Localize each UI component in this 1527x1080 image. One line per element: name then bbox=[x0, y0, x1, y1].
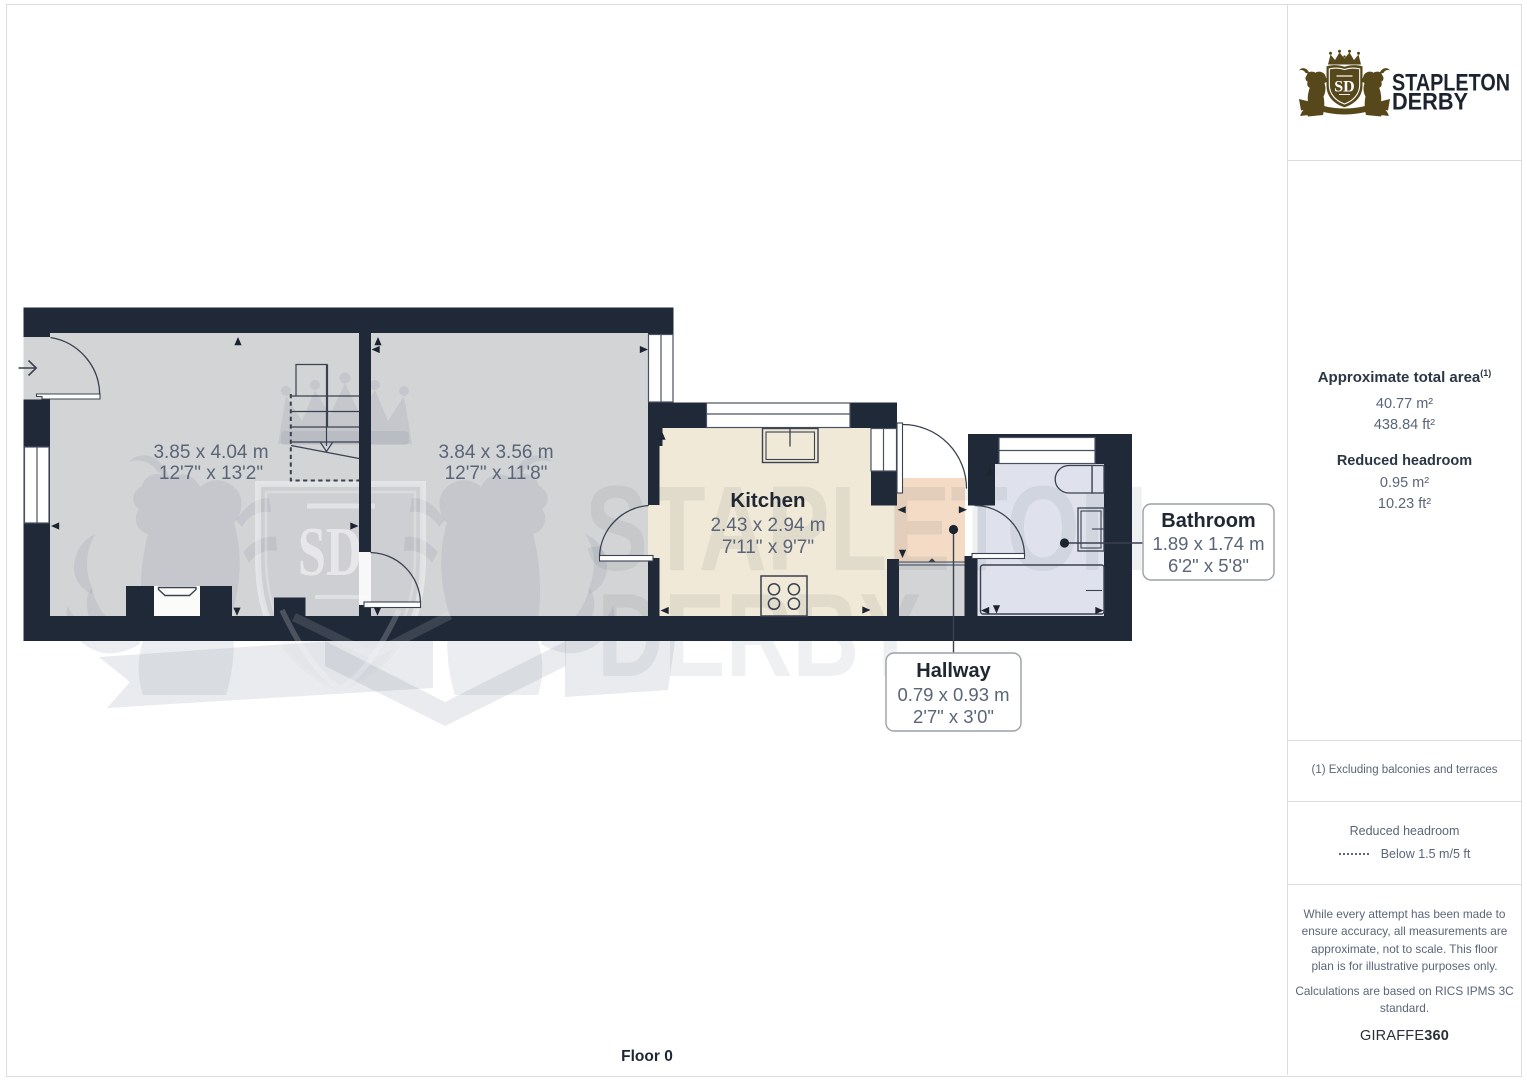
svg-text:Hallway: Hallway bbox=[916, 660, 991, 682]
svg-text:DERBY: DERBY bbox=[1392, 89, 1468, 116]
svg-text:1.89 x 1.74 m: 1.89 x 1.74 m bbox=[1152, 533, 1264, 554]
svg-text:0.79 x 0.93 m: 0.79 x 0.93 m bbox=[897, 684, 1009, 705]
svg-text:Bathroom: Bathroom bbox=[1161, 510, 1255, 532]
svg-text:3.84 x 3.56 m: 3.84 x 3.56 m bbox=[438, 442, 553, 463]
svg-text:6'2" x 5'8": 6'2" x 5'8" bbox=[1168, 555, 1249, 576]
svg-text:Kitchen: Kitchen bbox=[730, 489, 805, 512]
svg-text:SD: SD bbox=[1334, 79, 1354, 96]
svg-text:3.85 x 4.04 m: 3.85 x 4.04 m bbox=[153, 442, 268, 463]
svg-text:Floor 0: Floor 0 bbox=[621, 1048, 673, 1065]
svg-text:2.43 x 2.94 m: 2.43 x 2.94 m bbox=[710, 515, 825, 536]
svg-text:12'7" x 13'2": 12'7" x 13'2" bbox=[159, 463, 263, 484]
svg-text:12'7" x 11'8": 12'7" x 11'8" bbox=[445, 463, 548, 484]
svg-text:2'7" x 3'0": 2'7" x 3'0" bbox=[913, 706, 994, 727]
svg-text:7'11" x 9'7": 7'11" x 9'7" bbox=[722, 537, 814, 558]
